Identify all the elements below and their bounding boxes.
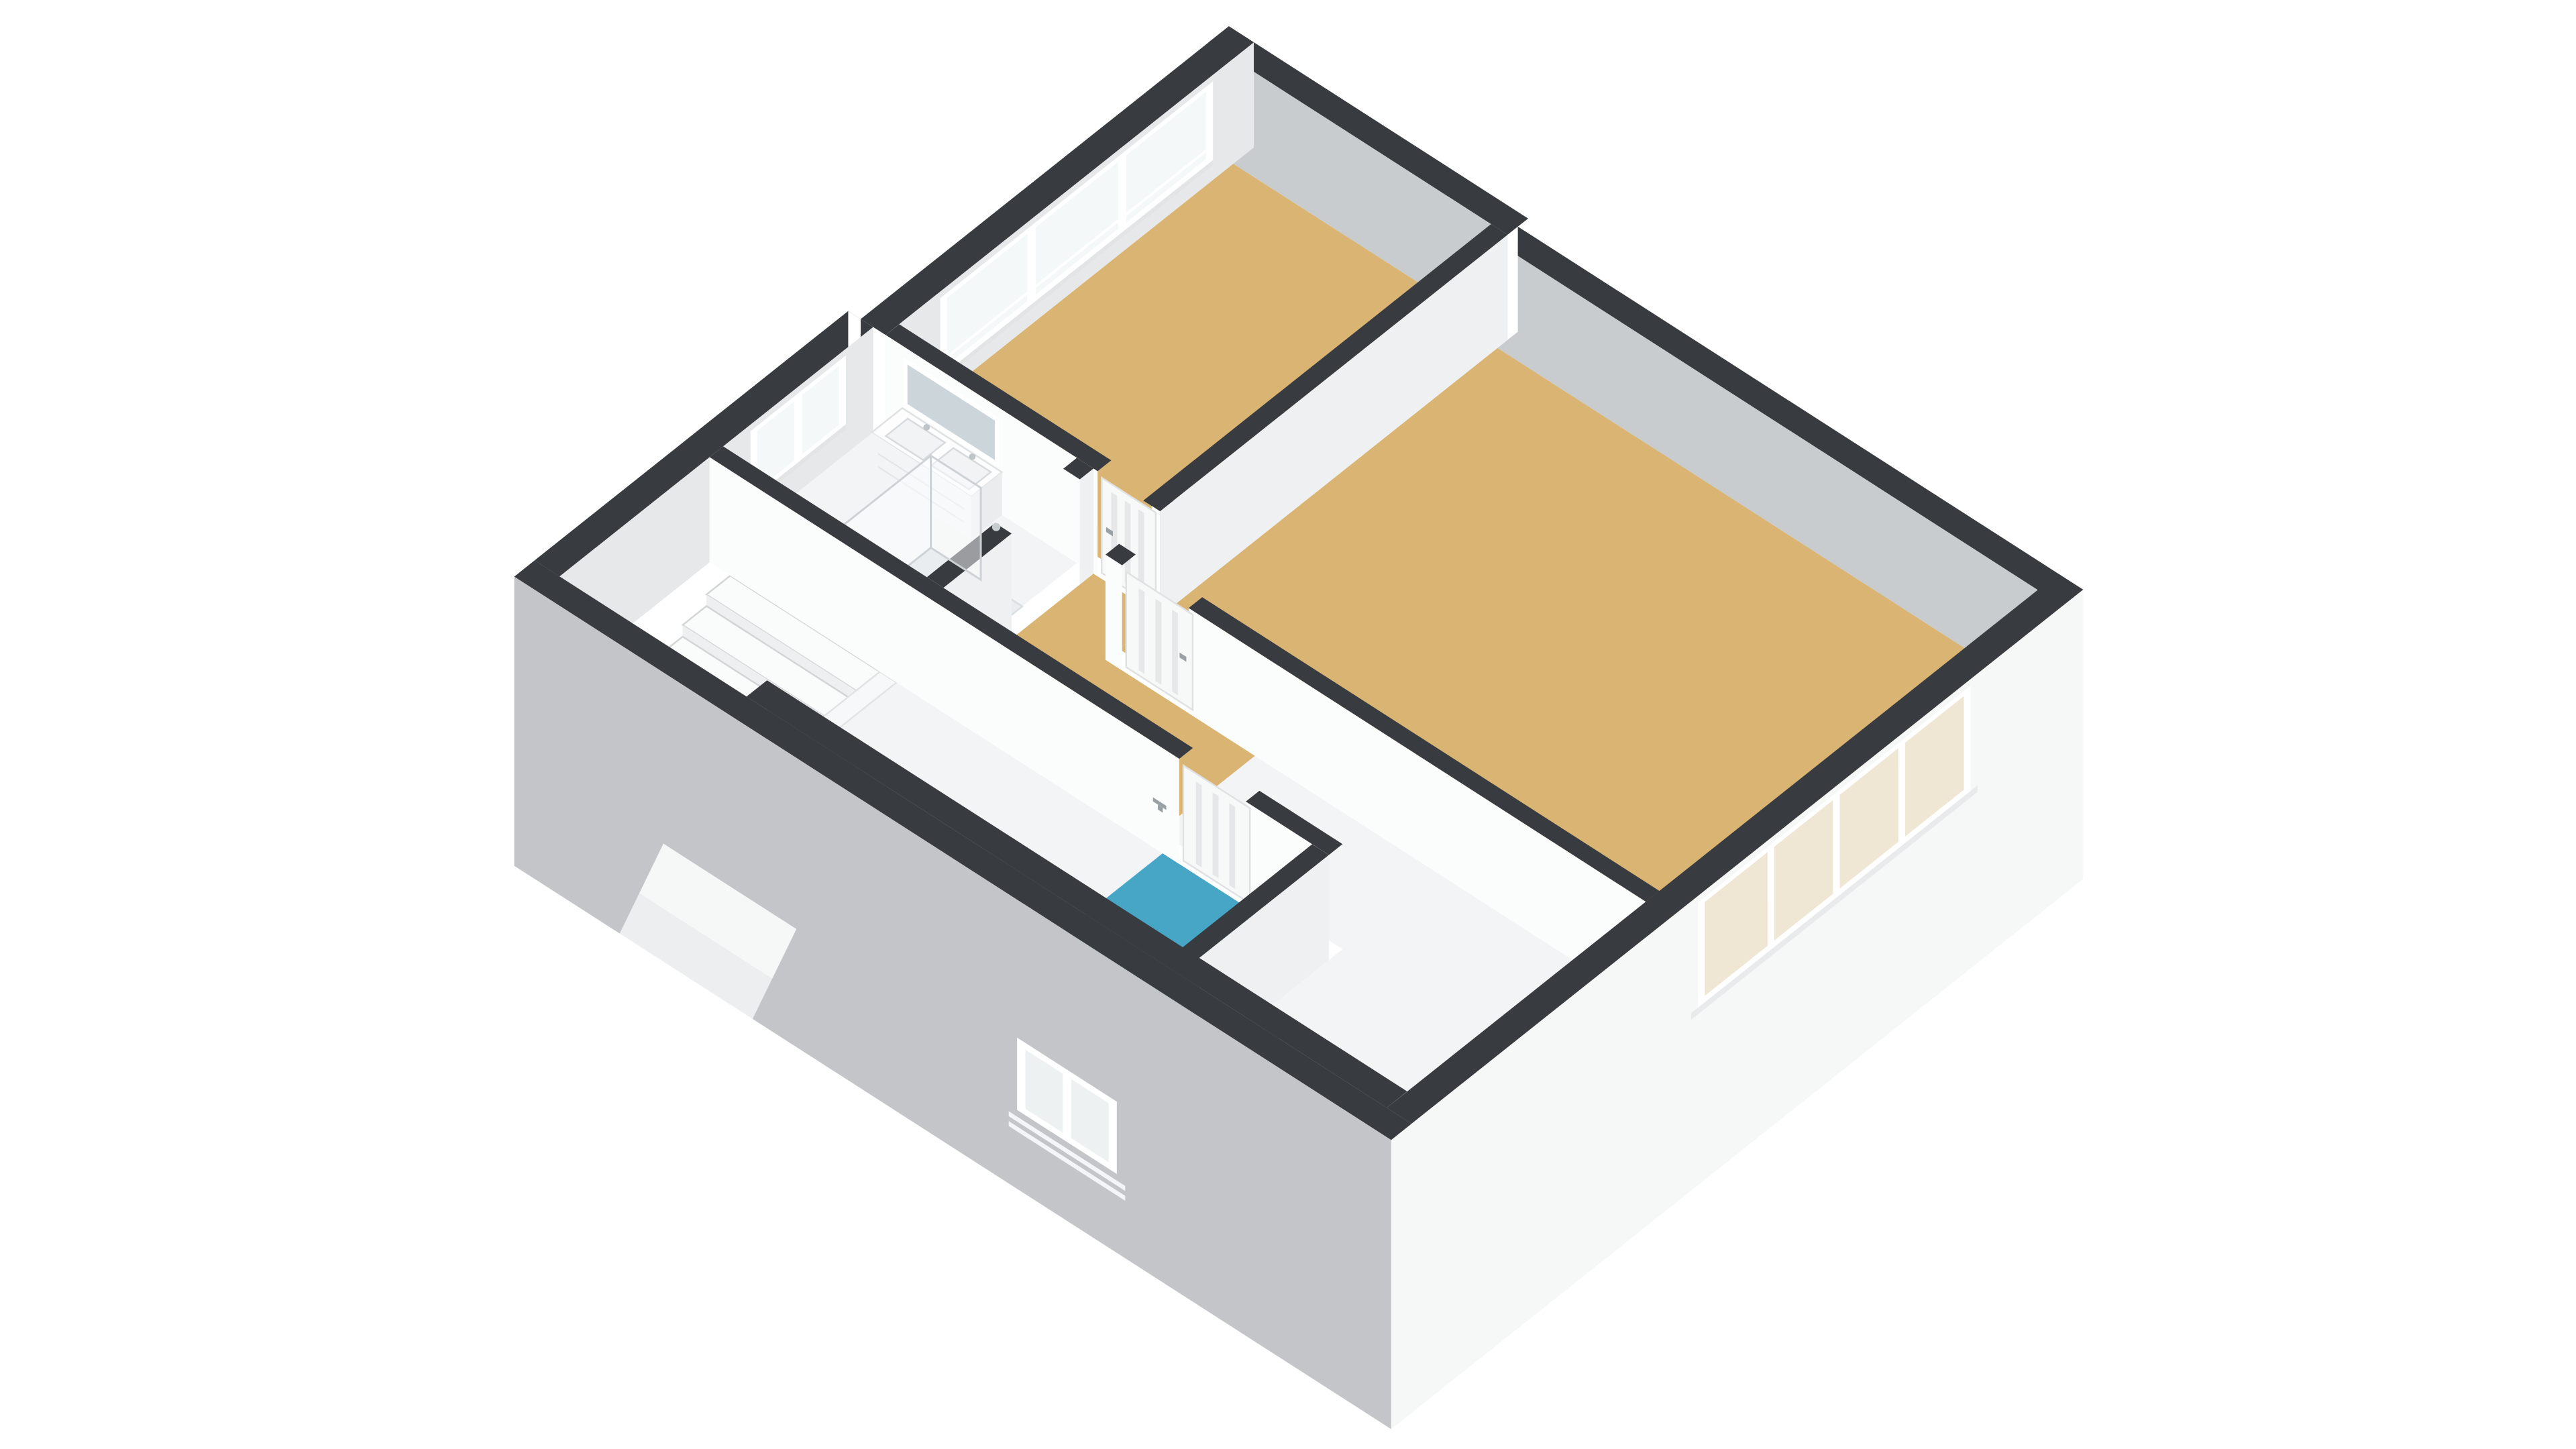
bedroom-right-wall-face — [1106, 555, 1122, 671]
floor-plan — [0, 0, 2576, 1449]
window-mullion — [794, 395, 802, 461]
door-panel-line — [1213, 792, 1219, 878]
door-panel-line — [1172, 610, 1178, 696]
door-panel-line — [1139, 588, 1145, 674]
shower-head-icon — [992, 523, 1000, 531]
floor-plan-canvas — [0, 0, 2576, 1449]
window-mullion — [1063, 1073, 1071, 1138]
bathroom-east-wall-face — [1080, 468, 1093, 584]
vanity-faucet-icon — [923, 424, 930, 431]
door-panel-line — [1155, 599, 1161, 685]
door-panel-line — [1229, 803, 1235, 889]
door-panel-line — [1196, 782, 1202, 867]
vanity-faucet-icon — [969, 453, 975, 460]
